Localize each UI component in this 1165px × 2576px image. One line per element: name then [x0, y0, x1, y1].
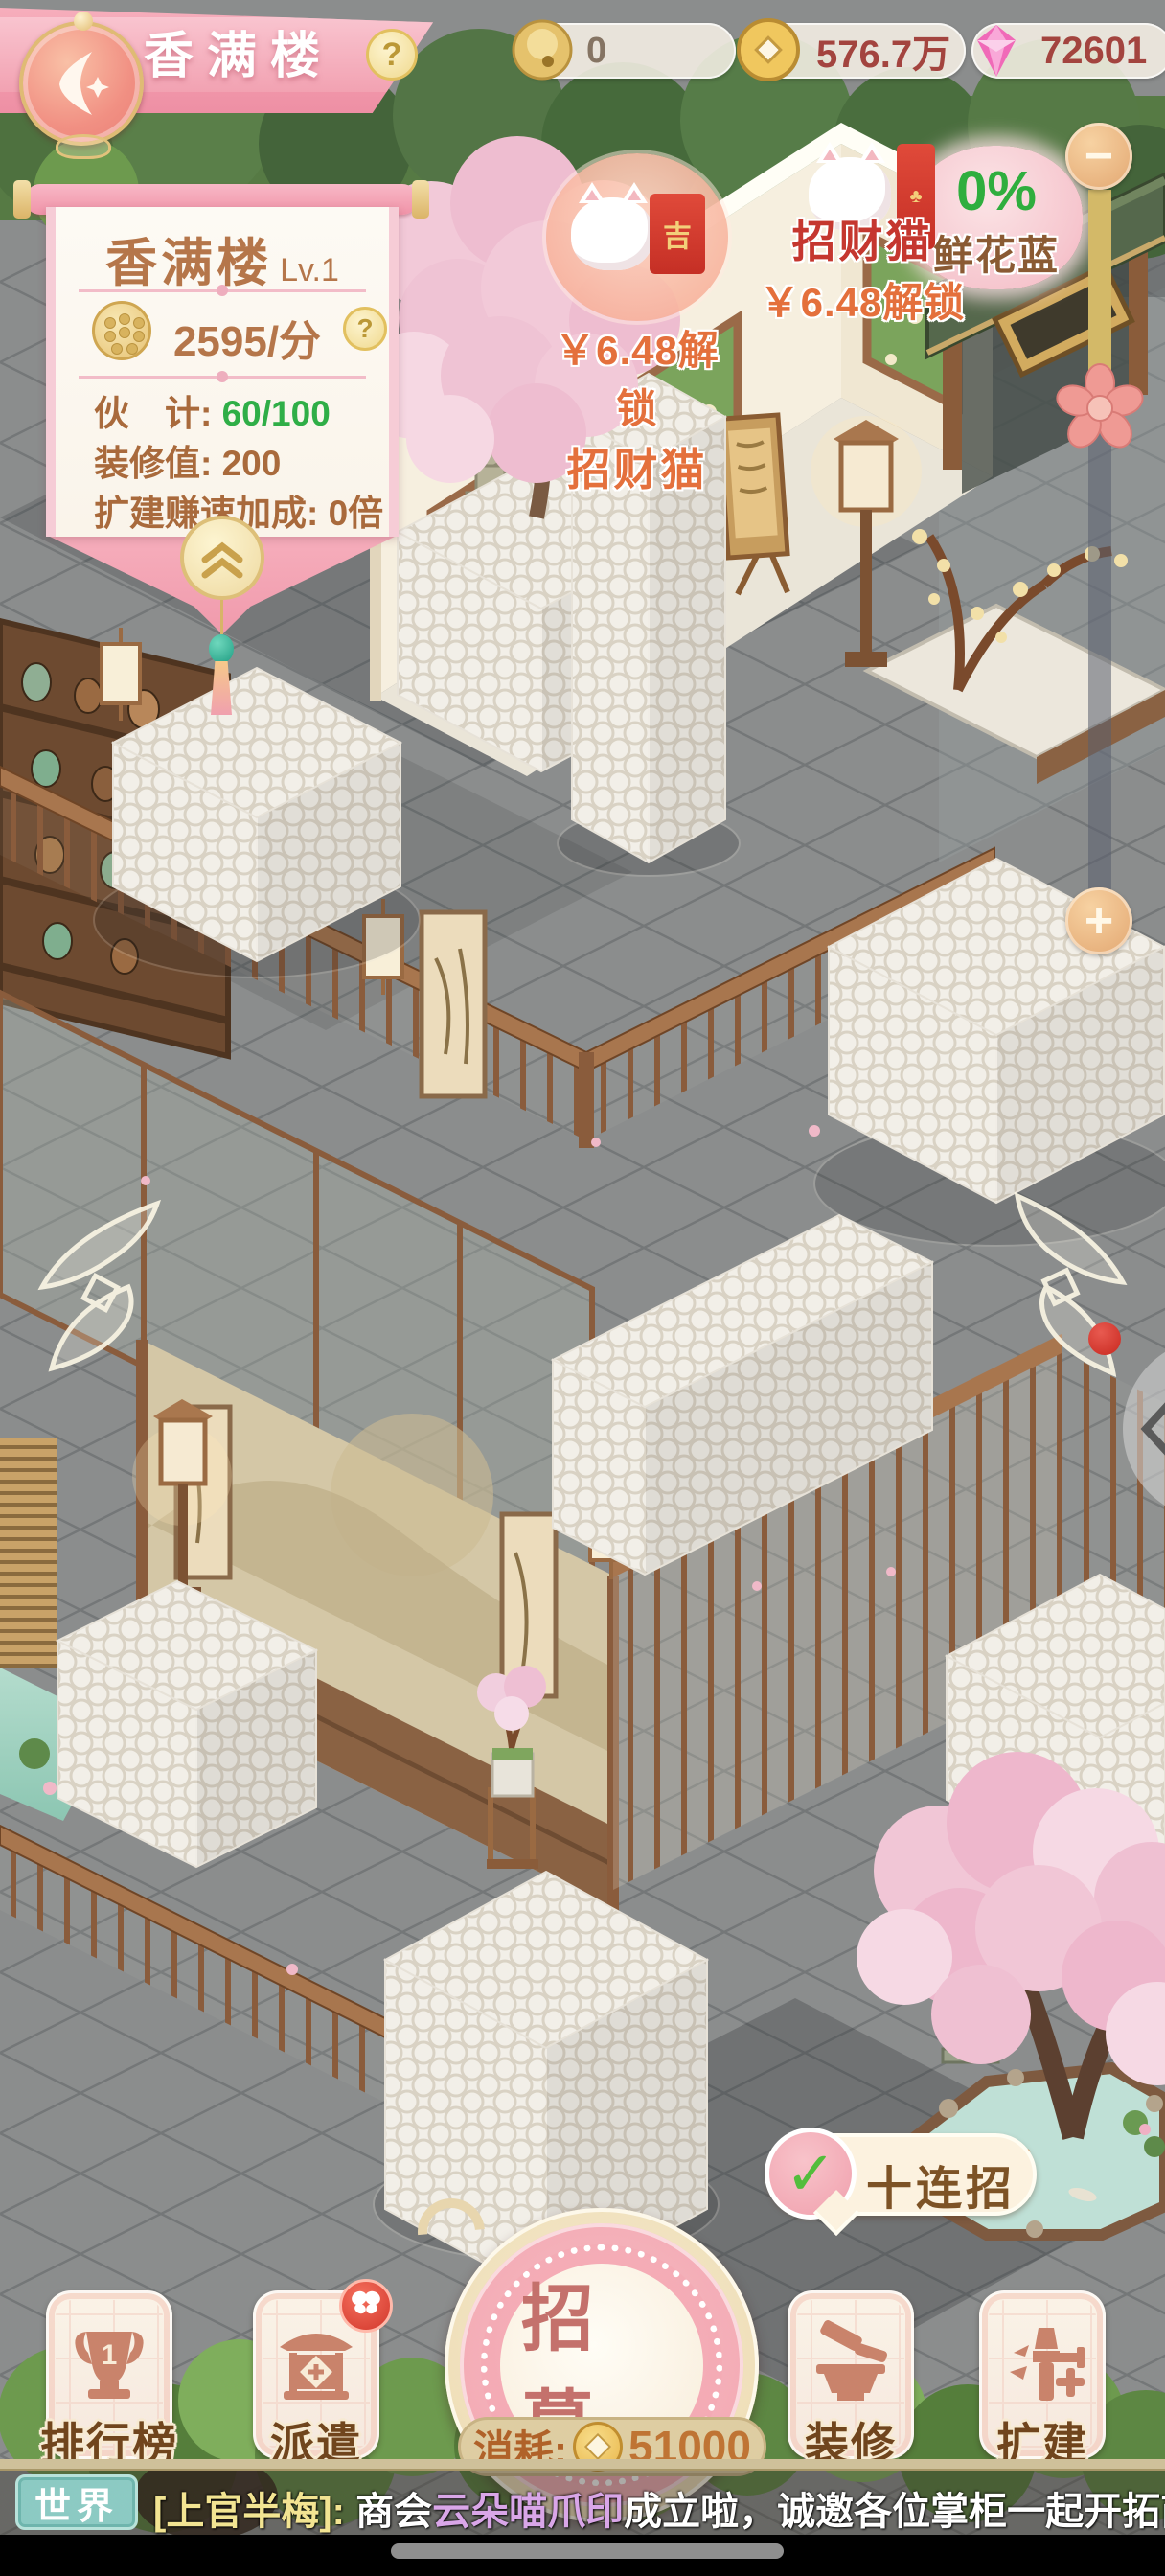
trophy-icon: 1 — [63, 2318, 155, 2410]
hammer-icon — [996, 2318, 1088, 2410]
double-chevron-up-icon — [184, 519, 261, 596]
page-title: 香满楼 — [144, 15, 354, 87]
bottom-system-bar — [0, 2535, 1165, 2576]
wing-marker-icon — [989, 1186, 1152, 1378]
cat-ear — [621, 182, 648, 203]
dispatch-button[interactable]: 派遣 — [253, 2290, 379, 2459]
ranking-button[interactable]: 1 排行榜 — [46, 2290, 172, 2459]
zoom-slider-track[interactable] — [1088, 190, 1111, 891]
swallow-icon — [44, 44, 121, 121]
shop-name: 香满楼 — [105, 235, 272, 292]
income-help-button[interactable]: ? — [343, 307, 387, 351]
furniture-icon — [805, 2318, 897, 2410]
chat-sender: [上官半梅]: — [153, 2491, 345, 2533]
chevron-left-icon — [1136, 1398, 1165, 1460]
cat-ear — [858, 142, 885, 163]
game-screen: 香满楼 ? 0 576.7万 72601 — [0, 0, 1165, 2576]
shop-info-panel: 香满楼Lv.1 2595/分 ? 伙 计: 60/100 装修值: — [21, 163, 427, 709]
wing-marker-icon — [13, 1196, 176, 1378]
chat-channel-badge[interactable]: 世界 — [15, 2474, 138, 2530]
zoom-in-button[interactable]: + — [1065, 887, 1132, 954]
cat-ear — [579, 182, 605, 203]
decorate-button[interactable]: 装修 — [788, 2290, 914, 2459]
tassel-bead — [209, 634, 234, 663]
guild-name-link[interactable]: 云朵喵爪印 — [432, 2491, 624, 2533]
chat-message[interactable]: [上官半梅]: 商会云朵喵爪印成立啦，诚邀各位掌柜一起开拓商界，我 — [153, 2480, 1165, 2536]
cat-name: 招财猫 — [757, 207, 968, 270]
ten-pull-label: 十连招 — [866, 2150, 1016, 2218]
coin-currency-value: 576.7万 — [816, 23, 950, 79]
unlock-price: ￥6.48解锁 — [757, 270, 968, 329]
currency-bell[interactable]: 0 — [517, 23, 736, 79]
ten-pull-bubble[interactable]: ✓ 十连招 — [766, 2133, 1037, 2216]
stat-decor: 装修值: 200 — [94, 439, 400, 489]
dispatch-badge — [339, 2279, 393, 2333]
diamond-currency-value: 72601 — [1040, 30, 1147, 73]
home-indicator[interactable] — [391, 2543, 784, 2559]
locked-maneki-neko-left[interactable]: 吉 ￥6.48解锁 招财猫 — [537, 144, 738, 498]
shop-stats: 伙 计: 60/100 装修值: 200 扩建赚速加成: 0倍 — [94, 389, 400, 539]
pavilion-icon — [270, 2318, 362, 2410]
diamond-icon — [962, 15, 1031, 84]
butterfly-icon — [350, 2288, 382, 2317]
income-coins-icon — [92, 301, 151, 360]
panel-body: 香满楼Lv.1 2595/分 ? 伙 计: 60/100 装修值: — [46, 207, 399, 537]
tassel-string — [220, 600, 223, 634]
title-help-button[interactable]: ? — [366, 29, 418, 80]
maneki-neko-sprite — [571, 197, 653, 270]
shop-level: Lv.1 — [280, 252, 339, 288]
cat-ear — [816, 142, 843, 163]
avatar-medallion-button[interactable] — [19, 17, 149, 151]
medallion-knob — [74, 11, 93, 31]
bell-currency-value: 0 — [586, 31, 606, 72]
divider — [79, 289, 366, 292]
zoom-out-button[interactable]: − — [1065, 123, 1132, 190]
cat-name: 招财猫 — [537, 435, 738, 498]
chat-bar[interactable]: 世界 [上官半梅]: 商会云朵喵爪印成立啦，诚邀各位掌柜一起开拓商界，我 — [0, 2471, 1165, 2536]
expand-button[interactable]: 扩建 — [979, 2290, 1106, 2459]
chat-divider — [0, 2459, 1165, 2471]
stat-waiters: 伙 计: 60/100 — [94, 389, 400, 439]
zoom-slider-handle[interactable] — [1054, 362, 1146, 454]
divider — [79, 376, 366, 379]
locked-maneki-neko-right[interactable]: ♣ 招财猫 ￥6.48解锁 — [757, 123, 968, 329]
bell-coin-icon — [508, 15, 577, 84]
income-rate: 2595/分 — [161, 307, 333, 368]
panel-collapse-button[interactable] — [180, 516, 264, 600]
sakura-flower-icon — [1054, 362, 1146, 454]
lotus-ornament-icon — [56, 134, 111, 159]
gold-coin-icon — [734, 15, 803, 84]
currency-coins[interactable]: 576.7万 — [743, 23, 966, 79]
red-envelope: 吉 — [650, 194, 705, 274]
notification-dot — [1088, 1322, 1121, 1355]
svg-text:1: 1 — [102, 2339, 118, 2371]
tassel — [211, 661, 232, 715]
currency-diamond[interactable]: 72601 — [971, 23, 1165, 79]
unlock-price: ￥6.48解锁 — [537, 318, 738, 435]
